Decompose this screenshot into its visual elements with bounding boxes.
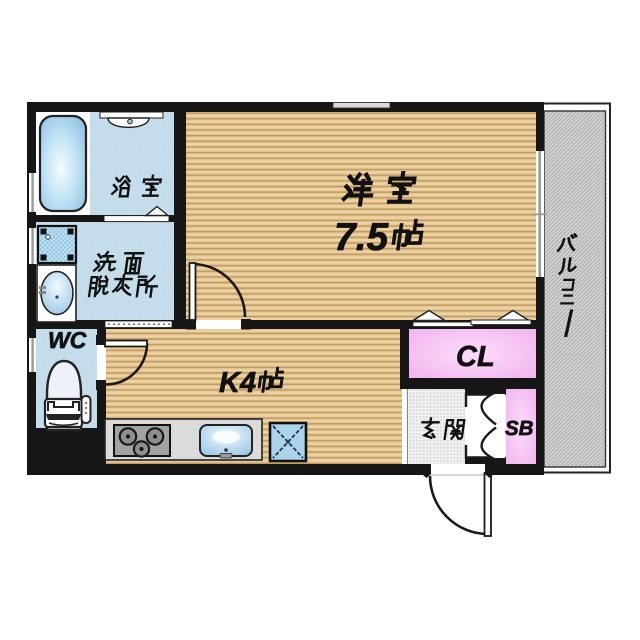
svg-text:WC: WC xyxy=(48,327,87,353)
svg-text:7.5: 7.5 xyxy=(334,216,390,259)
svg-text:CL: CL xyxy=(456,341,495,373)
svg-text:SB: SB xyxy=(505,417,534,440)
svg-text:K4: K4 xyxy=(219,367,256,399)
